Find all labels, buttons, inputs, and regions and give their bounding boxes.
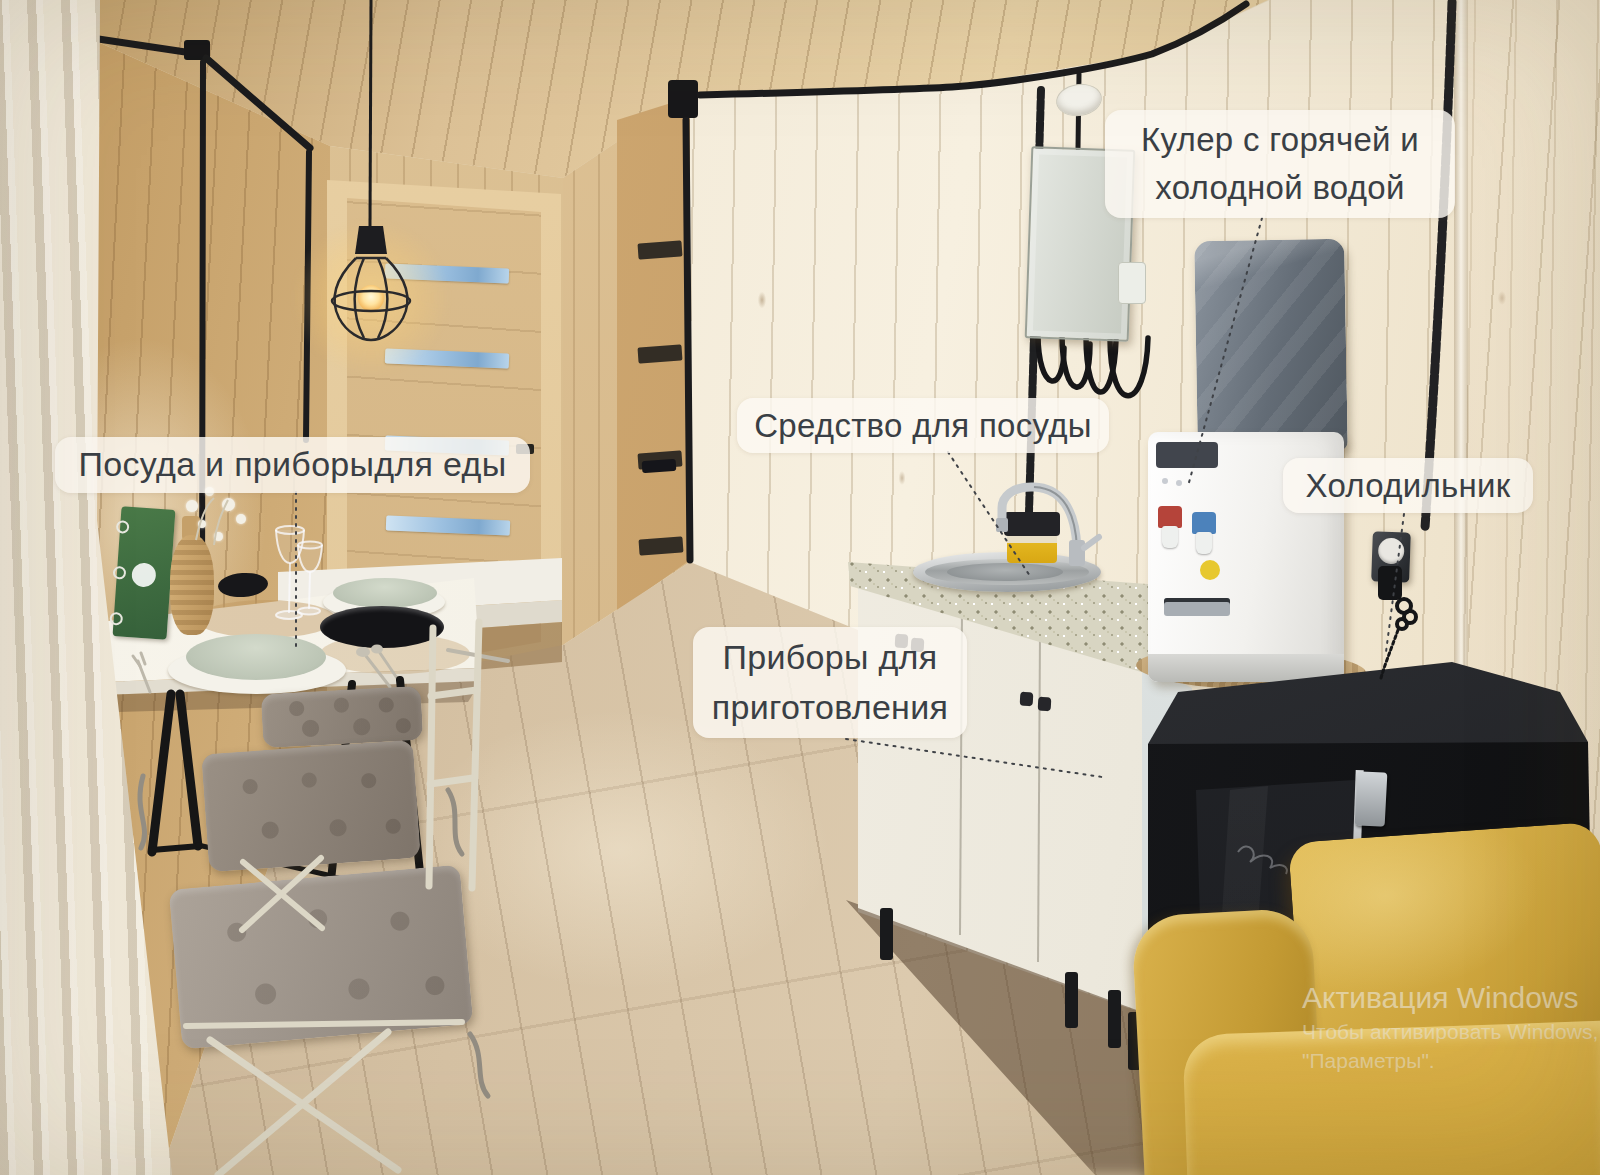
cabinet-handle (1020, 692, 1034, 707)
annotation-refrigerator-text: Холодильник (1305, 462, 1510, 510)
drip-tray (1164, 598, 1230, 616)
power-plug (1378, 566, 1402, 600)
tap-paddle (1196, 532, 1212, 554)
annotation-dish-soap-text: Средство для посуды (754, 402, 1092, 450)
dried-flower (198, 520, 206, 528)
wicker-vase (170, 535, 214, 635)
windows-activation-watermark-line3: "Параметры". (1302, 1049, 1435, 1073)
cold-water-tap (1192, 512, 1216, 534)
sage-bowl (333, 578, 437, 608)
annotation-cooking-utensils-line1: Приборы для (723, 633, 938, 682)
windows-activation-watermark: Активация Windows (1302, 981, 1578, 1015)
windows-activation-watermark-line2: Чтобы активировать Windows, пе (1302, 1020, 1600, 1044)
cooler-display (1156, 442, 1218, 468)
cooler-indicator (1176, 480, 1182, 486)
cooler-indicator (1162, 478, 1168, 484)
cabinet-leg (1065, 972, 1078, 1028)
annotation-dishes-text: Посуда и приборыдля еды (79, 440, 507, 489)
door-glass-slat (638, 536, 683, 555)
dried-flower (214, 532, 223, 541)
menu-card (113, 506, 176, 639)
small-wall-box (1118, 262, 1146, 304)
chair-cushion (169, 865, 474, 1050)
annotation-dishes: Посуда и приборыдля еды (55, 437, 530, 493)
black-bowl (320, 606, 444, 648)
chair-cushion (201, 740, 421, 873)
annotation-refrigerator: Холодильник (1283, 458, 1533, 513)
annotation-dish-soap: Средство для посуды (737, 398, 1109, 453)
tap-paddle (1162, 526, 1178, 548)
door-glass-slat (637, 344, 682, 363)
cabinet-leg (1108, 990, 1121, 1048)
sink-bowl (947, 563, 1063, 581)
chair-cushion (261, 686, 424, 748)
binder-ring (113, 566, 127, 580)
water-bottle-cover (1194, 239, 1348, 454)
dish-soap-cap (1004, 512, 1060, 536)
door-handle (642, 459, 677, 473)
cabinet-leg (880, 908, 893, 960)
dried-flower (222, 498, 235, 511)
annotated-room-photo: Посуда и приборыдля еды Средство для пос… (0, 0, 1600, 1175)
placemat (196, 600, 336, 638)
menu-card-logo (131, 562, 157, 588)
annotation-water-cooler-line2: холодной водой (1155, 164, 1404, 212)
dish-soap-bottle (1007, 533, 1057, 563)
cooler-sticker (1200, 560, 1220, 580)
door-glass-slat (637, 240, 682, 259)
hot-water-tap (1158, 506, 1182, 528)
sage-bowl (186, 634, 326, 680)
binder-ring (109, 612, 123, 626)
annotation-water-cooler: Кулер с горячей и холодной водой (1105, 110, 1455, 218)
dried-flower (186, 500, 198, 512)
lamp-glow (291, 218, 451, 378)
annotation-cooking-utensils: Приборы для приготовления (693, 627, 967, 738)
binder-ring (116, 520, 130, 534)
outlet-socket (1378, 538, 1405, 565)
annotation-water-cooler-line1: Кулер с горячей и (1141, 116, 1419, 164)
cabinet-handle (1038, 697, 1052, 712)
annotation-cooking-utensils-line2: приготовления (712, 683, 948, 732)
dried-flower (236, 514, 246, 524)
refrigerator-handle (1355, 771, 1388, 826)
